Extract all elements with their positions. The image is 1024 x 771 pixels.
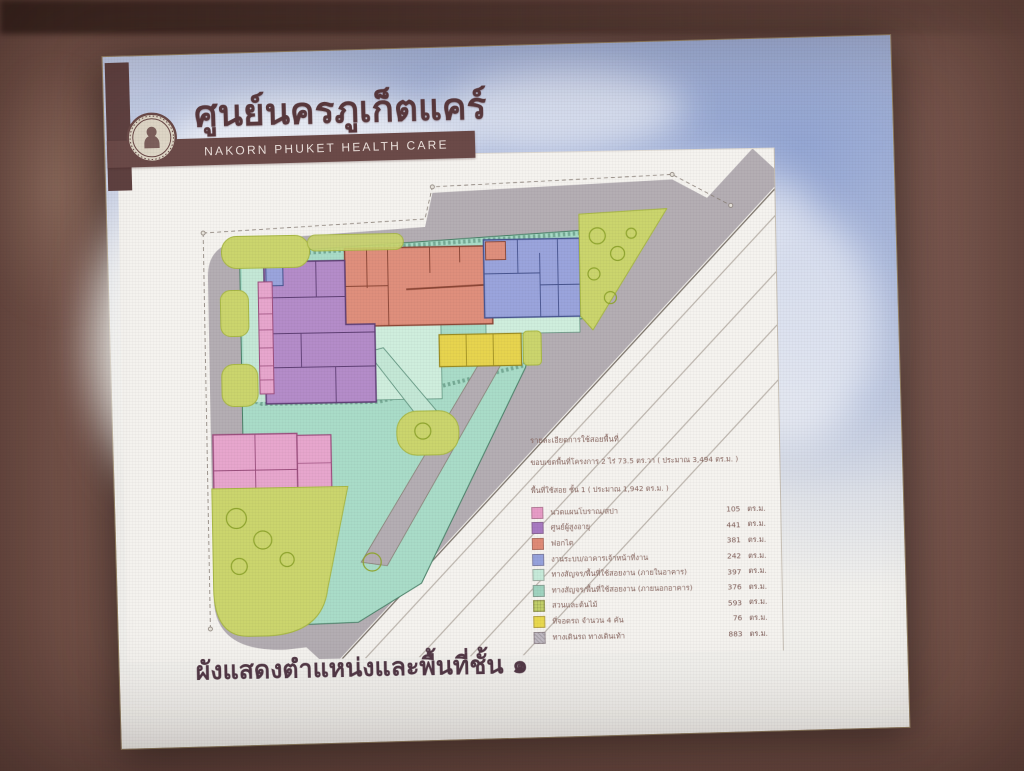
legend-unit: ตร.ม. [749, 580, 779, 593]
legend-swatch-garden [533, 600, 545, 612]
parking-area [439, 333, 522, 366]
legend-unit: ตร.ม. [748, 565, 778, 578]
legend-swatch-roads [534, 631, 546, 643]
legend-value: 376 [716, 583, 742, 592]
ceiling-shadow [0, 0, 1024, 34]
legend-value: 76 [716, 614, 742, 623]
site-plan-image: รายละเอียดการใช้สอยพื้นที่ ขอบเขตพื้นที่… [118, 148, 784, 663]
dialysis-building [344, 246, 492, 327]
legend-unit: ตร.ม. [748, 534, 778, 547]
legend-value: 593 [716, 598, 742, 607]
legend-swatch-dialysis [532, 538, 544, 550]
legend-label: ทางสัญจร/พื้นที่ใช้สอยงาน (ภายนอกอาคาร) [552, 581, 716, 596]
legend-unit: ตร.ม. [747, 518, 777, 531]
legend-value: 883 [717, 629, 743, 638]
legend-label: ทางเดินรถ ทางเดินเท้า [553, 628, 717, 643]
legend-floor-line: พื้นที่ใช้สอย ชั้น 1 ( ประมาณ 1,942 ตร.ม… [531, 482, 777, 498]
legend-value: 441 [715, 520, 741, 529]
legend-subtitle: ขอบเขตพื้นที่โครงการ 2 ไร่ 73.5 ตร.วา ( … [530, 454, 776, 470]
legend-unit: ตร.ม. [749, 596, 779, 609]
legend-label: นวดแผนโบราณ/สปา [550, 504, 714, 519]
legend-unit: ตร.ม. [748, 549, 778, 562]
legend-value: 397 [715, 567, 741, 576]
legend: รายละเอียดการใช้สอยพื้นที่ ขอบเขตพื้นที่… [530, 431, 780, 646]
legend-value: 105 [714, 505, 740, 514]
legend-swatch-massage [531, 507, 543, 519]
staff-systems-building [483, 238, 580, 318]
legend-swatch-indoor-circulation [532, 569, 544, 581]
massage-rooms-strip [258, 282, 274, 394]
legend-value: 381 [715, 536, 741, 545]
slide-caption: ผังแสดงตำแหน่งและพื้นที่ชั้น ๑ [195, 645, 528, 692]
legend-swatch-outdoor-circulation [533, 585, 545, 597]
hospital-seal-icon [125, 111, 178, 164]
photo-of-projection-screen: NAKORN PHUKET HEALTH CARE ศูนย์นครภูเก็ต… [0, 0, 1024, 771]
legend-swatch-systems [532, 553, 544, 565]
legend-unit: ตร.ม. [747, 502, 777, 515]
org-name-thai: ศูนย์นครภูเก็ตแคร์ [193, 76, 487, 143]
legend-unit: ตร.ม. [749, 612, 779, 625]
legend-unit: ตร.ม. [749, 627, 779, 640]
legend-label: ศูนย์ผู้สูงอายุ [551, 519, 715, 534]
legend-label: ที่จอดรถ จำนวน 4 คัน [552, 613, 716, 628]
legend-value: 242 [715, 551, 741, 560]
legend-swatch-parking [533, 616, 545, 628]
legend-swatch-elderly-center [532, 522, 544, 534]
legend-label: สวนและต้นไม้ [552, 597, 716, 612]
legend-label: ฟอกไต [551, 535, 715, 550]
legend-label: ทางสัญจร/พื้นที่ใช้สอยงาน (ภายในอาคาร) [551, 566, 715, 581]
projected-slide: NAKORN PHUKET HEALTH CARE ศูนย์นครภูเก็ต… [102, 35, 909, 749]
legend-label: งานระบบ/อาคารเจ้าหน้าที่งาน [551, 550, 715, 565]
